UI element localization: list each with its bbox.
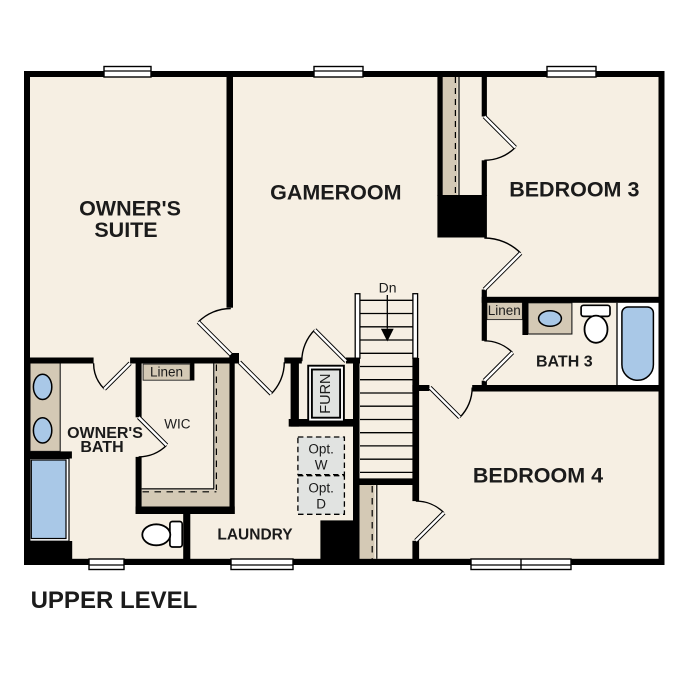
svg-text:SUITE: SUITE	[94, 218, 157, 242]
svg-text:Opt.: Opt.	[308, 442, 334, 457]
svg-text:Linen: Linen	[150, 365, 183, 380]
svg-text:FURN: FURN	[318, 373, 334, 413]
svg-text:D: D	[316, 497, 326, 512]
svg-text:BATH 3: BATH 3	[536, 354, 593, 371]
svg-text:W: W	[315, 458, 328, 473]
svg-text:GAMEROOM: GAMEROOM	[270, 180, 401, 204]
svg-text:BATH: BATH	[80, 439, 123, 456]
svg-text:Dn: Dn	[379, 279, 397, 295]
svg-text:OWNER'S: OWNER'S	[79, 196, 181, 220]
svg-text:BEDROOM 4: BEDROOM 4	[473, 463, 603, 487]
svg-text:BEDROOM 3: BEDROOM 3	[509, 177, 639, 201]
svg-text:Opt.: Opt.	[308, 481, 334, 496]
svg-text:Linen: Linen	[488, 303, 521, 318]
svg-text:LAUNDRY: LAUNDRY	[217, 527, 293, 544]
svg-text:WIC: WIC	[164, 417, 190, 432]
svg-text:UPPER LEVEL: UPPER LEVEL	[31, 587, 198, 614]
